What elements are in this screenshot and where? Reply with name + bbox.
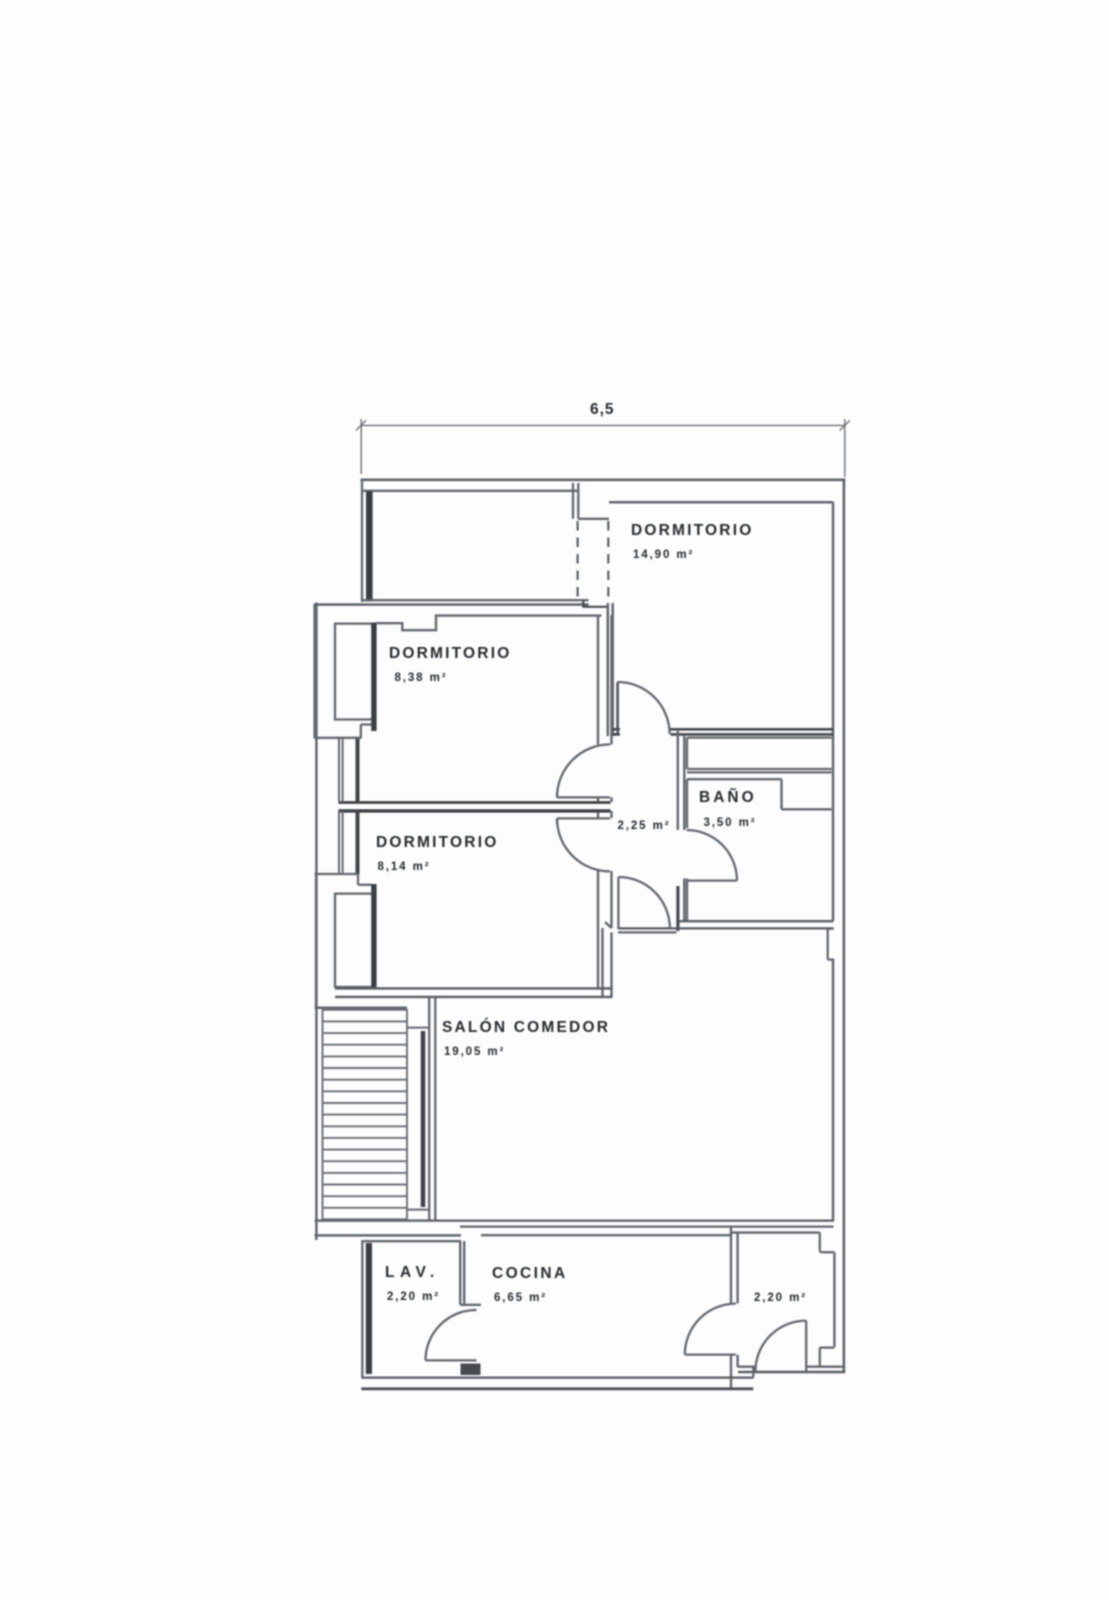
- svg-text:DORMITORIO: DORMITORIO: [631, 522, 753, 539]
- svg-text:2,20 m²: 2,20 m²: [754, 1292, 807, 1304]
- svg-text:8,38 m²: 8,38 m²: [395, 672, 448, 684]
- svg-text:DORMITORIO: DORMITORIO: [389, 645, 511, 662]
- svg-text:LAV.: LAV.: [385, 1264, 440, 1281]
- svg-text:14,90 m²: 14,90 m²: [633, 549, 694, 561]
- svg-text:BAÑO: BAÑO: [699, 788, 757, 806]
- svg-text:2,25 m²: 2,25 m²: [618, 820, 671, 832]
- svg-text:6,5: 6,5: [590, 401, 615, 418]
- svg-text:2,20 m²: 2,20 m²: [387, 1291, 440, 1303]
- svg-text:8,14 m²: 8,14 m²: [378, 861, 431, 873]
- svg-text:COCINA: COCINA: [492, 1265, 568, 1282]
- svg-text:SALÓN COMEDOR: SALÓN COMEDOR: [442, 1018, 610, 1036]
- svg-text:19,05 m²: 19,05 m²: [444, 1046, 505, 1058]
- svg-text:6,65 m²: 6,65 m²: [494, 1292, 547, 1304]
- svg-text:3,50 m²: 3,50 m²: [704, 817, 757, 829]
- svg-text:DORMITORIO: DORMITORIO: [376, 834, 498, 851]
